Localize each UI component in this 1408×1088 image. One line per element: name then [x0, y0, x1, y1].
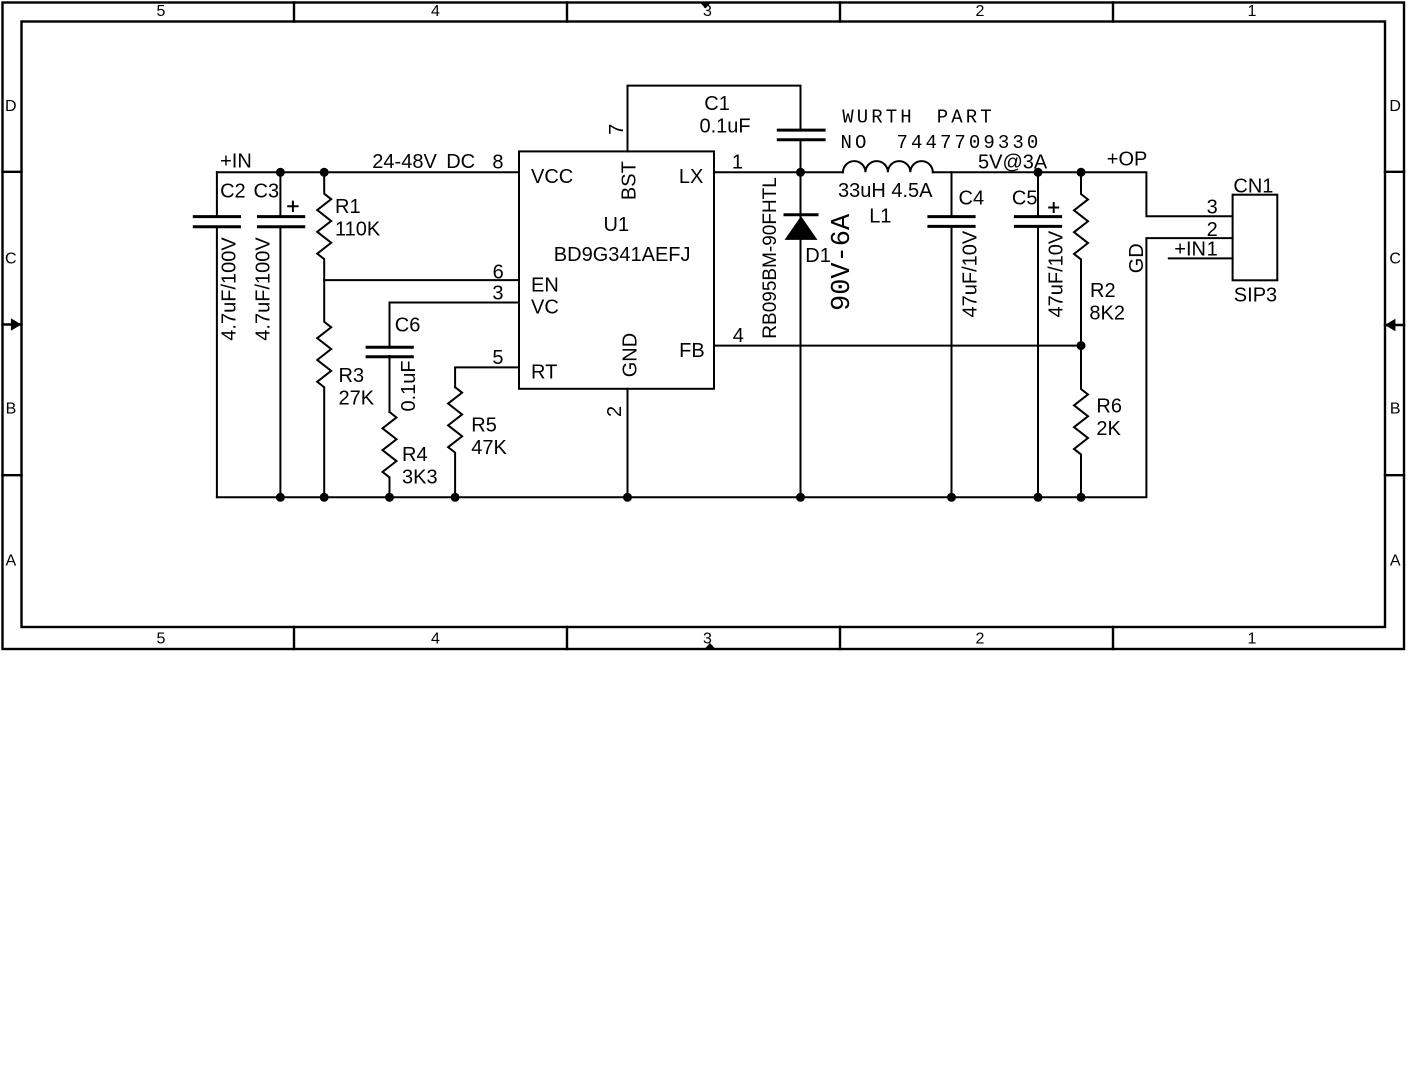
svg-text:NO: NO [841, 132, 870, 154]
svg-text:B: B [6, 401, 17, 418]
svg-text:C6: C6 [395, 315, 421, 337]
svg-text:4: 4 [431, 631, 440, 648]
svg-text:2: 2 [604, 406, 626, 417]
svg-text:3: 3 [703, 3, 712, 20]
svg-text:C3: C3 [254, 180, 280, 202]
svg-text:1: 1 [732, 151, 743, 173]
svg-text:R4: R4 [402, 444, 428, 466]
svg-text:47uF/10V: 47uF/10V [959, 230, 981, 317]
svg-text:C4: C4 [959, 187, 985, 209]
svg-text:C1: C1 [704, 93, 730, 115]
svg-text:C2: C2 [220, 180, 246, 202]
svg-text:D: D [1389, 98, 1401, 115]
svg-text:5V@3A: 5V@3A [978, 152, 1048, 174]
svg-text:1: 1 [1248, 3, 1257, 20]
svg-text:90V-6A: 90V-6A [828, 213, 858, 311]
svg-text:WURTH: WURTH [842, 107, 914, 129]
svg-text:4: 4 [733, 325, 744, 347]
svg-text:BST: BST [619, 161, 641, 200]
svg-text:3: 3 [1207, 197, 1218, 219]
svg-text:DC: DC [446, 151, 475, 173]
svg-text:BD9G341AEFJ: BD9G341AEFJ [554, 244, 691, 266]
svg-text:+IN: +IN [1174, 238, 1206, 260]
svg-text:RB095BM-90FHTL: RB095BM-90FHTL [760, 177, 781, 339]
svg-text:C: C [5, 250, 17, 267]
svg-text:EN: EN [531, 274, 559, 296]
svg-text:4.7uF/100V: 4.7uF/100V [252, 237, 274, 341]
svg-text:R1: R1 [335, 196, 361, 218]
svg-text:LX: LX [679, 166, 703, 188]
svg-text:D: D [5, 98, 17, 115]
svg-text:8K2: 8K2 [1089, 302, 1125, 324]
svg-text:3K3: 3K3 [402, 466, 438, 488]
svg-text:R6: R6 [1096, 396, 1122, 418]
svg-text:R2: R2 [1090, 280, 1116, 302]
svg-text:47uF/10V: 47uF/10V [1046, 230, 1068, 317]
svg-text:110K: 110K [335, 218, 381, 240]
svg-text:C5: C5 [1012, 187, 1038, 209]
svg-text:5: 5 [157, 631, 166, 648]
svg-text:0.1uF: 0.1uF [700, 116, 751, 138]
svg-text:5: 5 [492, 347, 503, 369]
svg-text:CN1: CN1 [1233, 176, 1273, 198]
svg-text:R3: R3 [339, 365, 365, 387]
svg-text:4: 4 [431, 3, 440, 20]
svg-text:+IN: +IN [220, 151, 252, 173]
svg-text:0.1uF: 0.1uF [398, 360, 420, 411]
svg-text:3: 3 [703, 631, 712, 648]
svg-text:PART: PART [937, 107, 995, 129]
svg-text:A: A [1390, 553, 1401, 570]
svg-text:1: 1 [1207, 238, 1218, 260]
svg-text:27K: 27K [339, 387, 375, 409]
svg-text:2K: 2K [1096, 418, 1121, 440]
svg-text:33uH 4.5A: 33uH 4.5A [838, 180, 933, 202]
svg-text:6: 6 [493, 261, 504, 283]
svg-text:1: 1 [1248, 631, 1257, 648]
svg-text:3: 3 [492, 283, 503, 305]
svg-text:B: B [1390, 401, 1401, 418]
svg-text:7447709330: 7447709330 [897, 132, 1042, 154]
svg-text:C: C [1389, 250, 1401, 267]
svg-text:GND: GND [620, 333, 642, 377]
svg-text:U1: U1 [604, 214, 630, 236]
svg-text:47K: 47K [471, 437, 507, 459]
svg-text:VCC: VCC [531, 166, 573, 188]
svg-text:+OP: +OP [1107, 149, 1148, 171]
svg-text:5: 5 [157, 3, 166, 20]
svg-text:7: 7 [606, 124, 628, 135]
svg-text:2: 2 [976, 3, 985, 20]
svg-text:VC: VC [531, 297, 559, 319]
svg-text:L1: L1 [869, 206, 891, 228]
svg-text:GD: GD [1126, 243, 1148, 273]
svg-text:24-48V: 24-48V [372, 151, 437, 173]
svg-text:4.7uF/100V: 4.7uF/100V [218, 237, 240, 341]
svg-text:FB: FB [679, 340, 705, 362]
svg-text:2: 2 [976, 631, 985, 648]
svg-text:SIP3: SIP3 [1234, 284, 1277, 306]
svg-text:R5: R5 [471, 415, 497, 437]
svg-text:RT: RT [531, 362, 557, 384]
svg-text:8: 8 [492, 151, 503, 173]
svg-text:A: A [5, 553, 16, 570]
